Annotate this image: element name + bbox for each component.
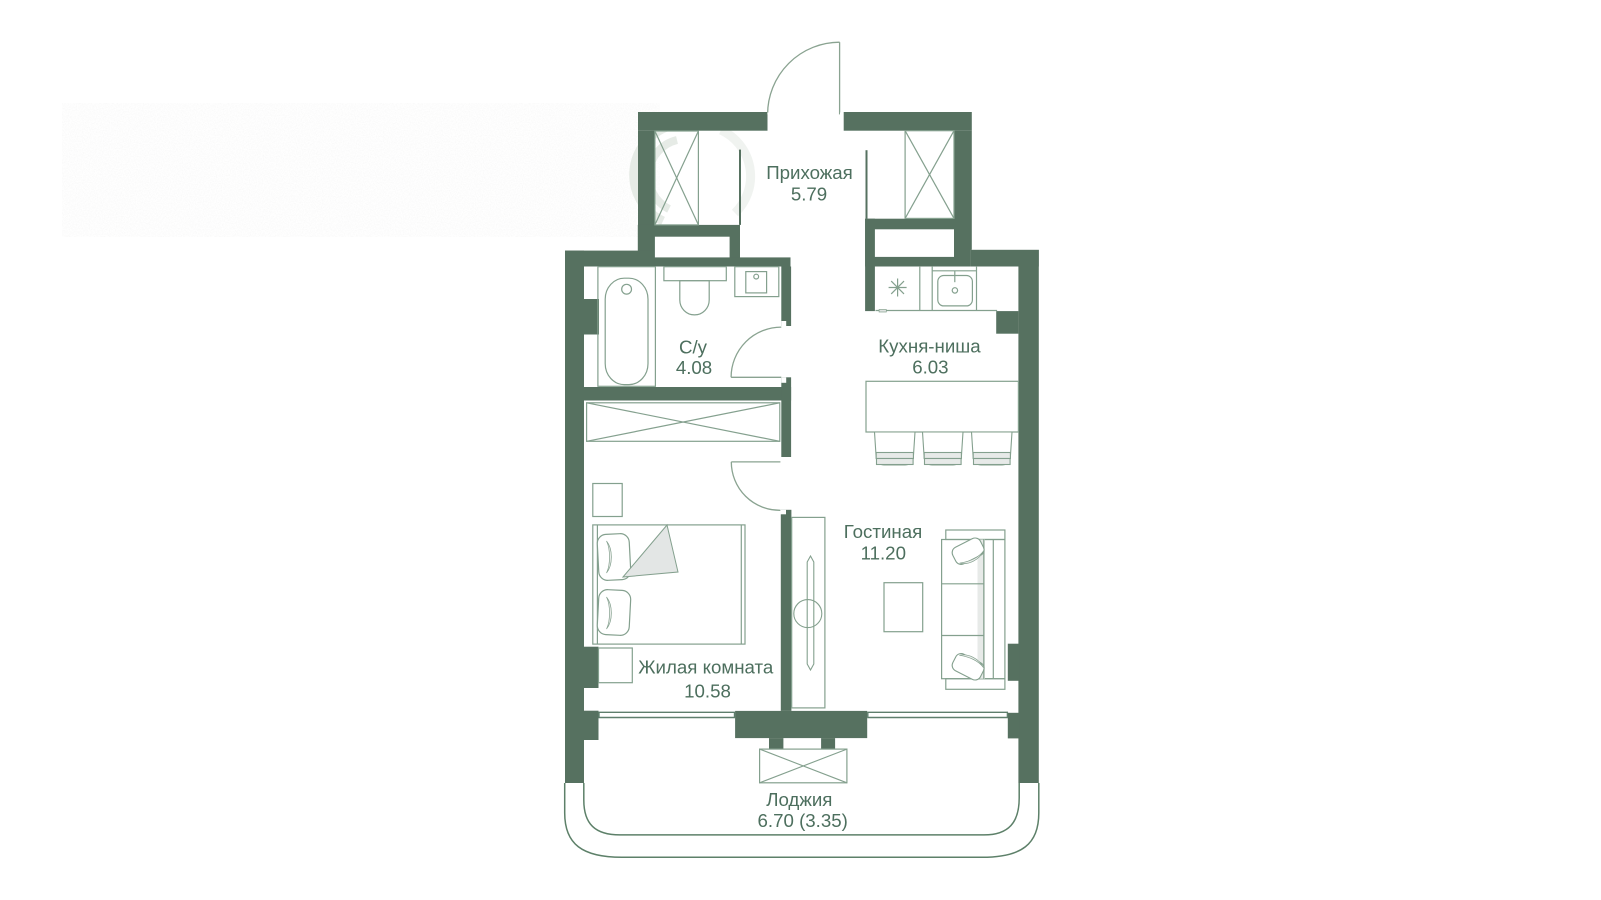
svg-text:6.70 (3.35): 6.70 (3.35) [758,810,848,831]
svg-text:10.58: 10.58 [684,681,731,702]
svg-text:С/у: С/у [679,337,708,358]
svg-text:Прихожая: Прихожая [766,162,853,183]
svg-text:5.79: 5.79 [791,183,827,204]
svg-text:4.08: 4.08 [676,357,712,378]
svg-text:Гостиная: Гостиная [844,521,922,542]
svg-text:11.20: 11.20 [861,543,906,564]
svg-text:6.03: 6.03 [912,357,948,378]
svg-text:Лоджия: Лоджия [766,789,832,810]
svg-text:Жилая комната: Жилая комната [638,657,774,678]
svg-text:Кухня-ниша: Кухня-ниша [878,336,981,357]
